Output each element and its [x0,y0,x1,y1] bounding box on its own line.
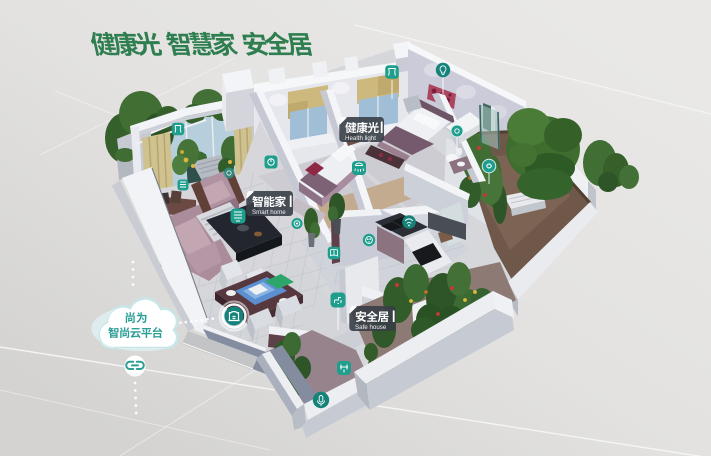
svg-text:Health light: Health light [345,135,376,142]
svg-text:Smart home: Smart home [252,209,286,216]
svg-text:Safe house: Safe house [355,324,387,331]
